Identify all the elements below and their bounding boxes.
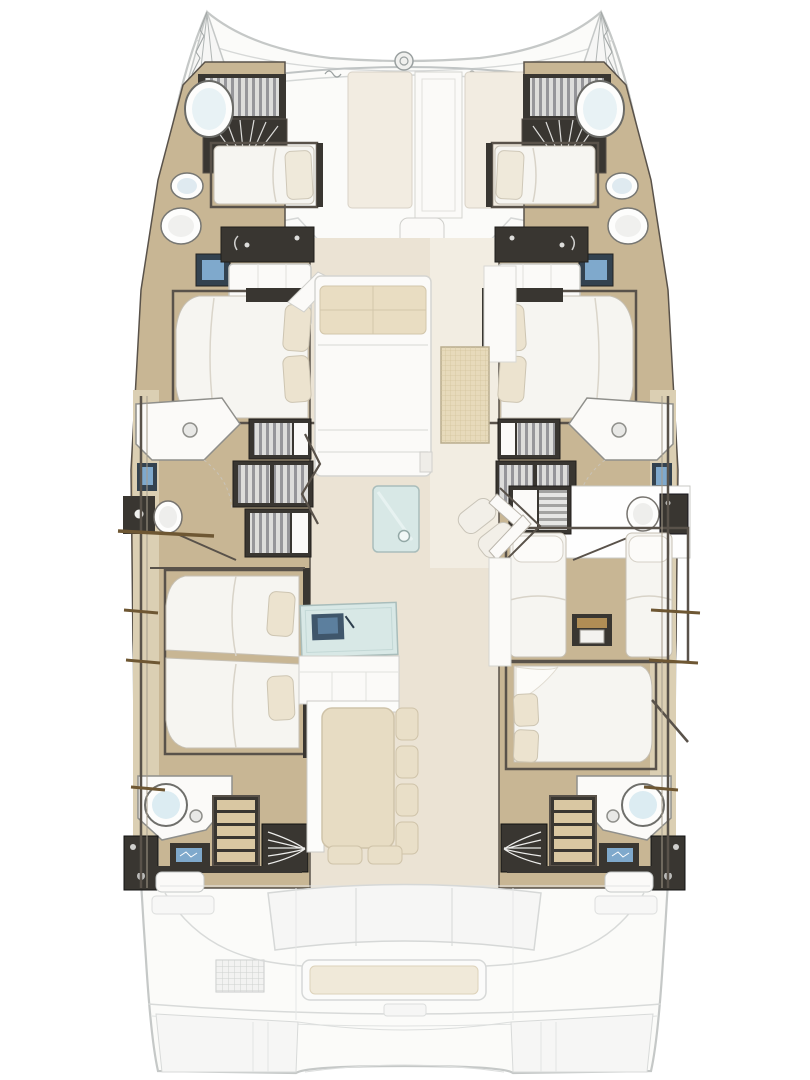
hull-apron-port	[152, 896, 214, 914]
seat-cushion	[328, 846, 362, 864]
hull-apron-starboard	[595, 896, 657, 914]
step	[554, 826, 592, 836]
shower-knob	[673, 844, 679, 850]
grill-grid	[216, 960, 264, 992]
deck-step	[156, 872, 204, 892]
pillow	[513, 536, 563, 562]
knob	[245, 243, 250, 248]
toilet-bowl	[168, 215, 194, 237]
toilet-bowl	[615, 215, 641, 237]
seat-cushion	[396, 708, 418, 740]
sink-basin	[585, 260, 607, 280]
nightstand-top	[577, 618, 607, 628]
round-sink-basin	[152, 791, 180, 819]
step	[217, 813, 255, 823]
step	[217, 839, 255, 849]
bed-pillow	[513, 693, 539, 726]
shelf-louvers	[539, 490, 567, 530]
knob	[510, 236, 515, 241]
drain	[607, 810, 619, 822]
bed-pillow	[282, 304, 311, 352]
step	[217, 826, 255, 836]
deck-hatch-glass	[583, 88, 617, 130]
round-sink-basin	[629, 791, 657, 819]
shower-knob	[130, 844, 136, 850]
stair-side	[294, 423, 308, 455]
bed-pillow	[266, 591, 295, 637]
deck-step	[605, 872, 653, 892]
seat-cushion	[368, 846, 402, 864]
transom-bulkhead	[130, 866, 302, 873]
dining-table	[322, 708, 394, 848]
bed-pillow	[496, 150, 524, 199]
vanity-basin	[607, 848, 633, 862]
table-knob	[399, 531, 410, 542]
galley-counter	[299, 656, 399, 704]
bed-wall	[486, 143, 492, 207]
deck-plan-drawing	[0, 0, 810, 1080]
drain	[190, 810, 202, 822]
toilet-bowl	[159, 506, 177, 528]
bed-pillow	[282, 355, 311, 403]
bed-pillow	[513, 729, 539, 762]
knob	[560, 243, 565, 248]
deck-hatch-glass	[192, 88, 226, 130]
inner-wall-panel	[489, 558, 511, 666]
step	[554, 813, 592, 823]
swim-platform-starboard	[511, 1014, 653, 1072]
bed-pillow	[267, 675, 295, 720]
porthole-glass	[612, 178, 632, 194]
aft-stairs	[550, 796, 596, 866]
galley-sink-basin	[318, 617, 339, 634]
step	[217, 800, 255, 810]
aft-bench-cushion	[310, 966, 478, 994]
aft-stairs	[213, 796, 259, 866]
drain	[612, 423, 626, 437]
sunpad-port	[348, 72, 412, 208]
toilet-bowl	[633, 503, 653, 525]
bed-wall	[317, 143, 323, 207]
seat-cushion	[396, 784, 418, 816]
step	[554, 800, 592, 810]
cockpit-bench-back	[268, 885, 541, 951]
swim-platform-port	[156, 1014, 298, 1072]
stair-louvers	[254, 423, 292, 455]
seat-cushion	[396, 746, 418, 778]
settee-tab	[420, 452, 432, 472]
stair-louvers	[517, 423, 555, 455]
stair-louvers	[250, 513, 290, 553]
catamaran-floor-plan	[0, 0, 810, 1080]
liferaft-locker	[384, 1004, 426, 1016]
pillow	[629, 536, 669, 562]
nightstand-drawer	[580, 630, 604, 643]
drain	[183, 423, 197, 437]
step	[554, 852, 592, 862]
woven-mat-grid	[441, 347, 489, 443]
bed-pillow	[285, 150, 313, 199]
knob	[295, 236, 300, 241]
transom-bulkhead	[507, 866, 679, 873]
stair-louvers	[238, 465, 270, 503]
step	[217, 852, 255, 862]
windlass-icon	[395, 52, 413, 70]
step	[554, 839, 592, 849]
porthole-glass	[177, 178, 197, 194]
stair-side	[501, 423, 515, 455]
port-aft-cabin	[150, 568, 310, 758]
stair-side	[292, 513, 308, 553]
sink-basin	[202, 260, 224, 280]
